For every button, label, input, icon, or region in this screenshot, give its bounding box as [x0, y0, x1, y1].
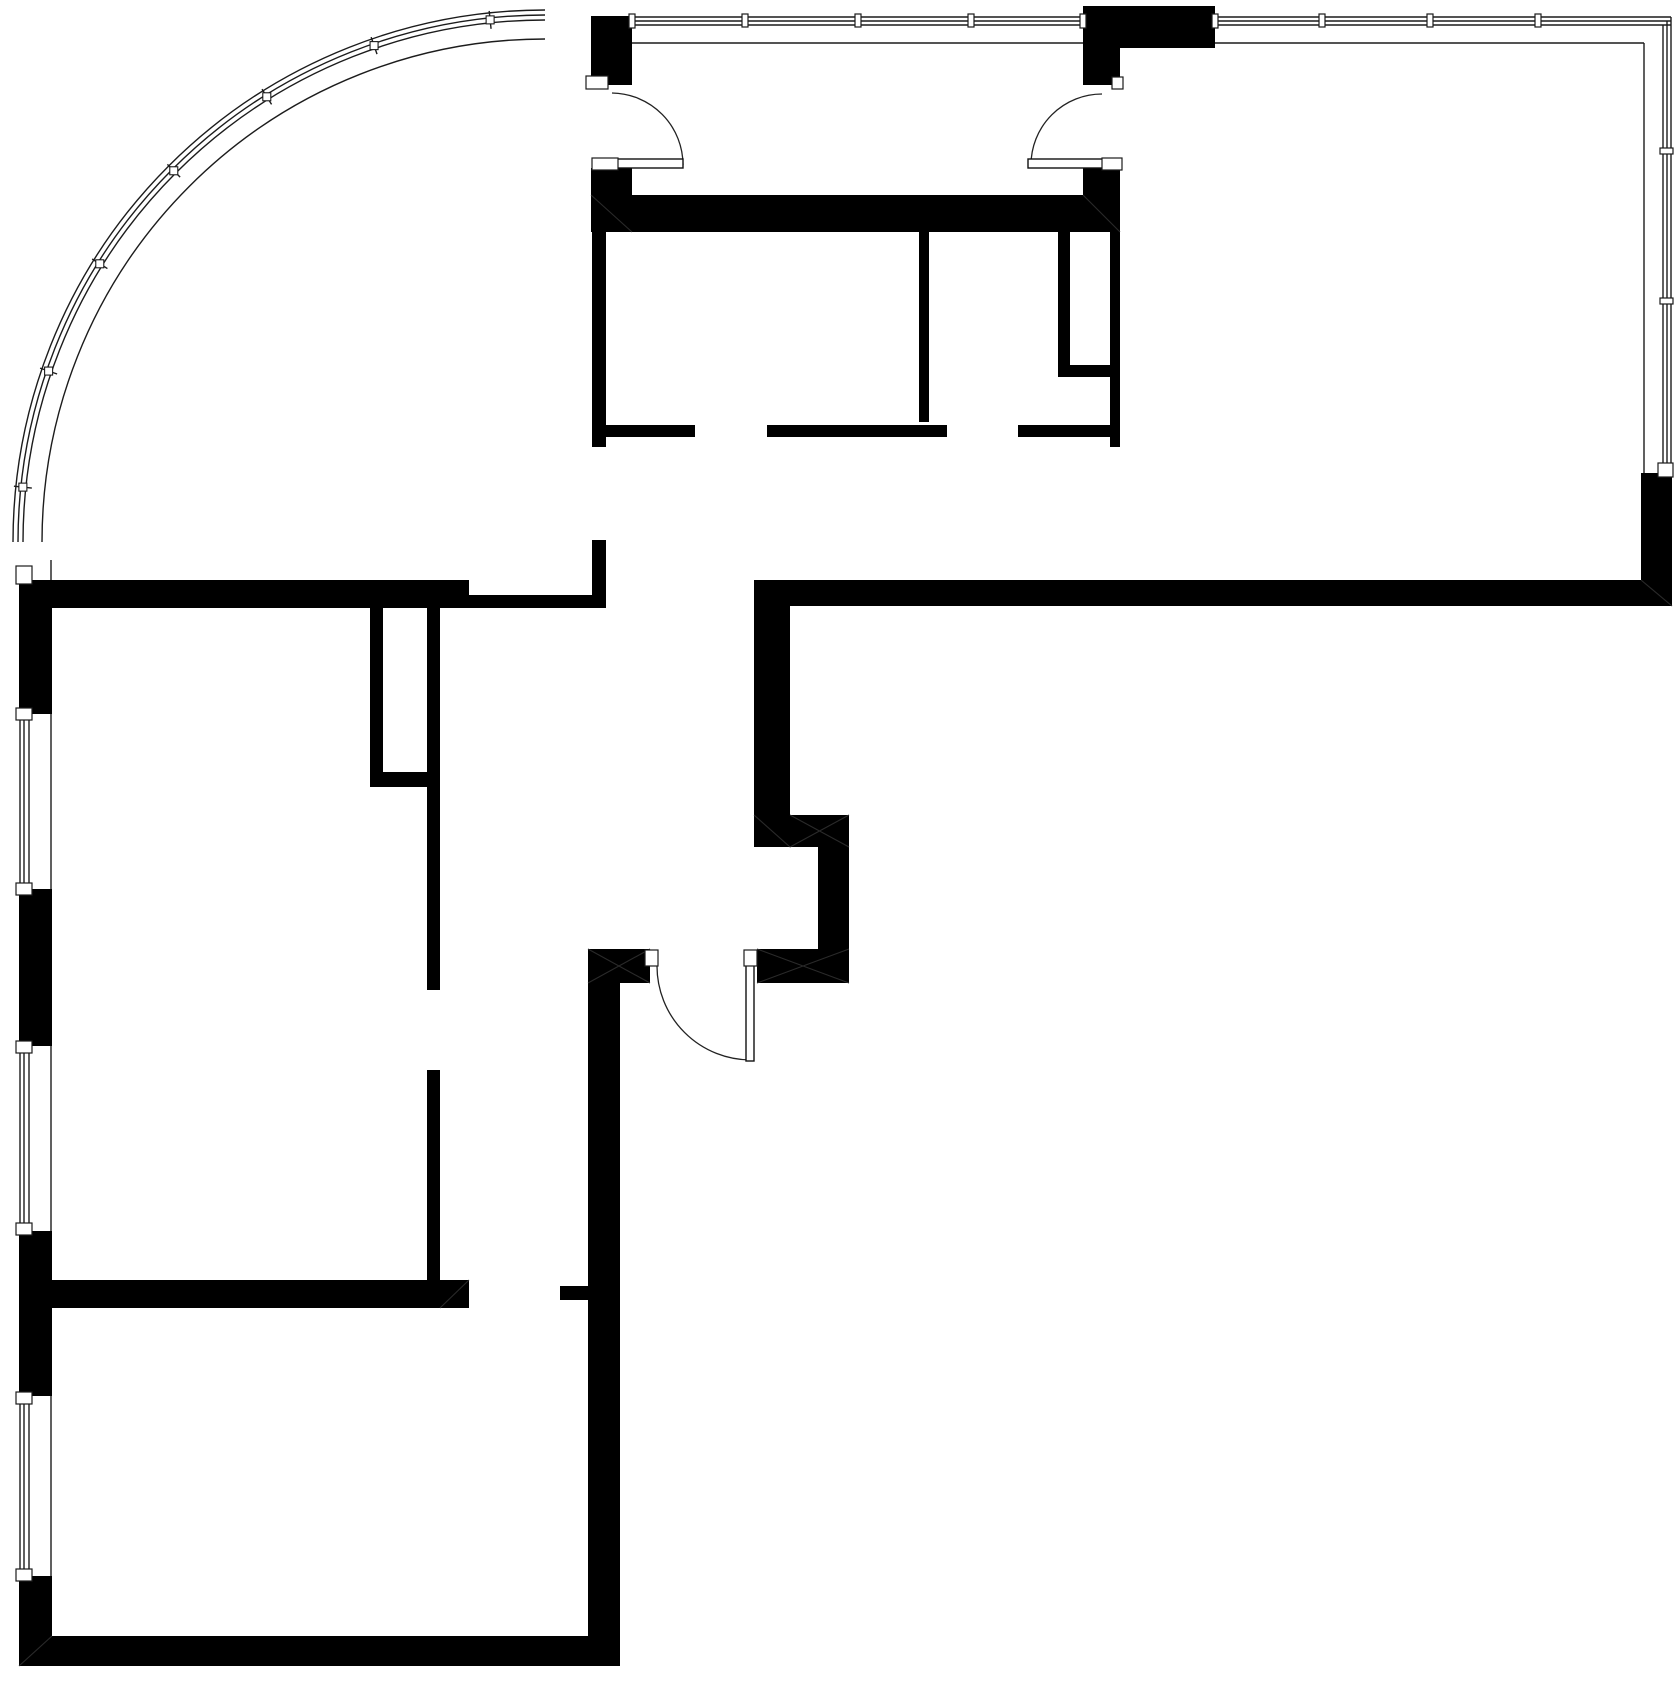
frame-cap: [1102, 158, 1122, 170]
frame-cap: [16, 566, 32, 584]
floor-plan-page: [0, 0, 1680, 1692]
frame-cap: [1080, 14, 1086, 28]
frame-cap: [16, 1223, 32, 1235]
frame-cap: [629, 14, 635, 28]
wall-segment: [1058, 232, 1070, 365]
frame-cap: [1212, 14, 1218, 28]
wall-segment: [591, 195, 1120, 232]
frame-cap: [855, 14, 861, 27]
frame-cap: [1660, 148, 1673, 154]
wall-segment: [1110, 232, 1120, 447]
wall-segment: [427, 1070, 440, 1282]
curtain-mullion-cap: [486, 16, 494, 24]
curtain-mullion-cap: [370, 42, 378, 50]
frame-cap: [592, 158, 618, 170]
wall-segment: [1641, 473, 1672, 606]
wall-segment: [560, 1286, 588, 1300]
wall-segment: [19, 1280, 469, 1308]
wall-segment: [591, 16, 632, 85]
frame-cap: [1658, 463, 1673, 477]
floor-plan-canvas: [0, 0, 1680, 1692]
curtain-mullion-cap: [45, 367, 53, 375]
frame-cap: [1112, 77, 1123, 89]
wall-segment: [370, 608, 383, 787]
wall-segment: [469, 595, 606, 608]
frame-cap: [742, 14, 748, 27]
frame-cap: [645, 950, 658, 966]
frame-cap: [1319, 14, 1325, 27]
wall-segment: [818, 847, 849, 949]
frame-cap: [16, 1392, 32, 1404]
door-leaf: [746, 963, 754, 1061]
wall-segment: [1018, 425, 1110, 437]
wall-segment: [754, 815, 849, 847]
wall-segment: [19, 889, 52, 1046]
wall-segment: [19, 1636, 620, 1666]
wall-segment: [19, 586, 52, 714]
wall-segment: [1083, 168, 1120, 195]
wall-segment: [591, 168, 632, 195]
wall-segment: [588, 983, 620, 1666]
door-leaf: [1028, 159, 1103, 168]
frame-cap: [744, 950, 757, 966]
frame-cap: [16, 883, 32, 895]
frame-cap: [586, 76, 608, 89]
frame-cap: [1427, 14, 1433, 27]
curtain-mullion-cap: [170, 167, 178, 175]
wall-segment: [19, 1576, 52, 1636]
wall-segment: [19, 580, 469, 608]
curtain-mullion-cap: [19, 483, 27, 491]
curtain-mullion-cap: [96, 260, 104, 268]
curtain-mullion-cap: [263, 93, 271, 101]
wall-segment: [754, 580, 1672, 606]
wall-segment: [1083, 6, 1215, 48]
frame-cap: [1660, 298, 1673, 304]
wall-segment: [919, 232, 929, 422]
frame-cap: [16, 1569, 32, 1581]
wall-segment: [754, 580, 790, 815]
frame-cap: [16, 1041, 32, 1053]
wall-segment: [767, 425, 947, 437]
frame-cap: [968, 14, 974, 27]
frame-cap: [16, 708, 32, 720]
wall-segment: [427, 608, 440, 990]
wall-segment: [606, 425, 695, 437]
wall-segment: [19, 1231, 52, 1396]
frame-cap: [1535, 14, 1541, 27]
wall-segment: [592, 232, 606, 447]
